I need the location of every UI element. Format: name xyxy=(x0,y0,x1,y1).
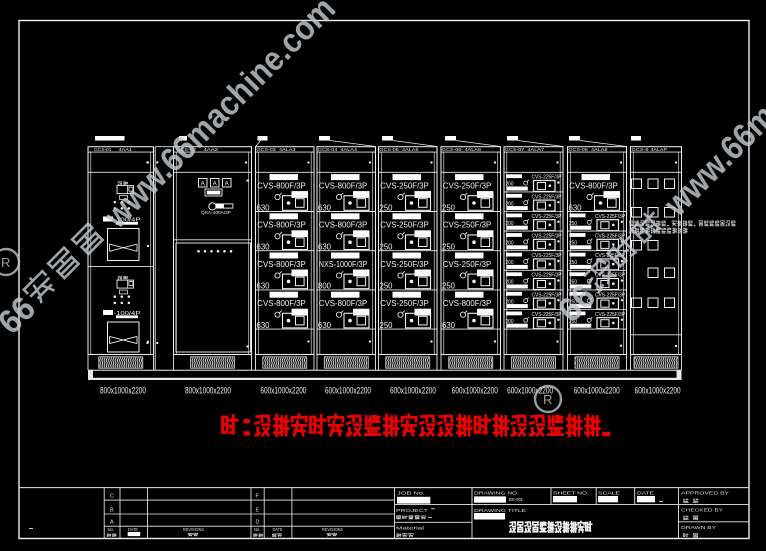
svg-text:800x1000x2200: 800x1000x2200 xyxy=(100,385,146,395)
svg-text:630: 630 xyxy=(318,242,331,252)
svg-text:CVS-225F/3P: CVS-225F/3P xyxy=(595,214,626,220)
svg-text:QSA-400A/3P: QSA-400A/3P xyxy=(201,210,231,215)
svg-text:CVS-800F/3P: CVS-800F/3P xyxy=(319,220,368,230)
svg-text:250: 250 xyxy=(380,320,393,330)
svg-text:CVS-225F/3P: CVS-225F/3P xyxy=(532,234,563,240)
svg-text:4ALAP: 4ALAP xyxy=(651,147,668,153)
svg-text:GCS-01: GCS-01 xyxy=(94,147,112,153)
svg-text:4ALA3: 4ALA3 xyxy=(279,147,296,153)
svg-text:600x1000x2200: 600x1000x2200 xyxy=(390,385,436,395)
svg-text:250: 250 xyxy=(442,242,455,252)
svg-text:600x1000x2200: 600x1000x2200 xyxy=(574,385,620,395)
svg-text:BS-001: BS-001 xyxy=(509,497,523,502)
svg-text:CVS-250F/3P: CVS-250F/3P xyxy=(380,220,429,230)
svg-text:630: 630 xyxy=(442,320,455,330)
svg-text:DRAWING TITLE: DRAWING TITLE xyxy=(474,508,526,514)
svg-text:4ALA7: 4ALA7 xyxy=(528,147,545,153)
svg-text:CVS-250F/3P: CVS-250F/3P xyxy=(380,180,429,190)
svg-text:250: 250 xyxy=(380,202,393,212)
svg-text:REVISIONS: REVISIONS xyxy=(322,527,343,532)
svg-text:R: R xyxy=(1,255,10,270)
svg-text:600x1000x2200: 600x1000x2200 xyxy=(260,385,306,395)
svg-text:CVS-225F/3P: CVS-225F/3P xyxy=(532,214,563,220)
svg-text:NXS-1000F/3P: NXS-1000F/3P xyxy=(319,259,368,269)
svg-text:4ALA5: 4ALA5 xyxy=(402,147,419,153)
svg-text:JOB No.: JOB No. xyxy=(397,491,425,497)
svg-text:Material: Material xyxy=(396,526,424,532)
svg-text:DATE: DATE xyxy=(637,491,654,497)
svg-text:DRAWING NO.: DRAWING NO. xyxy=(474,491,519,497)
svg-text:CVS-250F/3P: CVS-250F/3P xyxy=(380,259,429,269)
svg-text:B: B xyxy=(110,507,114,513)
svg-text:630: 630 xyxy=(257,320,270,330)
svg-text:630: 630 xyxy=(257,202,270,212)
svg-text:600x1000x2200: 600x1000x2200 xyxy=(635,385,681,395)
svg-text:250: 250 xyxy=(442,281,455,291)
svg-text:CVS-800F/3P: CVS-800F/3P xyxy=(319,180,368,190)
svg-text:630: 630 xyxy=(318,320,331,330)
svg-text:600x1000x2200: 600x1000x2200 xyxy=(325,385,371,395)
svg-text:630: 630 xyxy=(569,202,582,212)
svg-text:CVS-225F/3P: CVS-225F/3P xyxy=(532,175,563,181)
svg-text:4ALA8: 4ALA8 xyxy=(591,147,608,153)
svg-text:GCS-05: GCS-05 xyxy=(379,147,399,153)
svg-text:DATE: DATE xyxy=(273,527,283,532)
svg-text:PROJECT: PROJECT xyxy=(396,508,428,514)
svg-text:APPROVED BY: APPROVED BY xyxy=(681,491,730,497)
svg-text:R: R xyxy=(543,392,552,407)
svg-text:CVS-250F/3P: CVS-250F/3P xyxy=(443,259,492,269)
svg-text:630: 630 xyxy=(257,242,270,252)
svg-text:CVS-800F/3P: CVS-800F/3P xyxy=(569,180,618,190)
svg-text:CVS-225F/3P: CVS-225F/3P xyxy=(532,194,563,200)
svg-text:600x1000x2200: 600x1000x2200 xyxy=(452,385,498,395)
svg-text:630: 630 xyxy=(318,202,331,212)
svg-text:CVS-800F/3P: CVS-800F/3P xyxy=(257,259,306,269)
svg-text:250: 250 xyxy=(442,202,455,212)
svg-text:CVS-250F/3P: CVS-250F/3P xyxy=(443,180,492,190)
svg-text:CVS-800F/3P: CVS-800F/3P xyxy=(257,298,306,308)
svg-text:CVS-225F/3P: CVS-225F/3P xyxy=(532,273,563,279)
svg-text:CVS-225F/3P: CVS-225F/3P xyxy=(532,312,563,318)
svg-text:D: D xyxy=(256,520,260,526)
svg-text:No.: No. xyxy=(254,527,261,532)
svg-text:SHEET NO.: SHEET NO. xyxy=(553,491,589,497)
svg-text:GCS-06: GCS-06 xyxy=(442,147,462,153)
svg-text:GCS-9: GCS-9 xyxy=(632,147,649,153)
svg-text:CVS-250F/3P: CVS-250F/3P xyxy=(380,298,429,308)
svg-text:GCS-08: GCS-08 xyxy=(568,147,588,153)
svg-text:No.: No. xyxy=(108,527,115,532)
svg-text:CVS-225F/3P: CVS-225F/3P xyxy=(595,312,626,318)
svg-text:800x1000x2200: 800x1000x2200 xyxy=(185,385,231,395)
svg-text:CVS-250F/3P: CVS-250F/3P xyxy=(443,220,492,230)
svg-text:4AA1: 4AA1 xyxy=(119,147,133,153)
svg-text:250: 250 xyxy=(380,242,393,252)
svg-text:GCS-04: GCS-04 xyxy=(318,147,338,153)
svg-text:DATE: DATE xyxy=(128,527,138,532)
svg-text:E: E xyxy=(256,507,260,513)
svg-text:4ALA6: 4ALA6 xyxy=(465,147,482,153)
svg-text:CHECKED BY: CHECKED BY xyxy=(681,508,724,514)
svg-text:CVS-800F/3P: CVS-800F/3P xyxy=(257,180,306,190)
svg-text:630: 630 xyxy=(257,281,270,291)
svg-text:GCS-07: GCS-07 xyxy=(505,147,525,153)
svg-text:A: A xyxy=(110,520,114,526)
svg-text:250: 250 xyxy=(380,281,393,291)
svg-text:SCALE: SCALE xyxy=(598,491,620,497)
svg-text:DRAWN BY: DRAWN BY xyxy=(681,525,717,531)
svg-text:CVS-800F/3P: CVS-800F/3P xyxy=(257,220,306,230)
svg-text:C: C xyxy=(110,494,114,500)
svg-text:4ALA4: 4ALA4 xyxy=(341,147,358,153)
svg-text:GCS-03: GCS-03 xyxy=(256,147,276,153)
svg-text:800: 800 xyxy=(318,281,331,291)
svg-text:CVS-800F/3P: CVS-800F/3P xyxy=(443,298,492,308)
svg-text:REVISIONS: REVISIONS xyxy=(183,527,204,532)
svg-text:CVS-800F/3P: CVS-800F/3P xyxy=(319,298,368,308)
svg-text:CVS-225F/3P: CVS-225F/3P xyxy=(532,253,563,259)
